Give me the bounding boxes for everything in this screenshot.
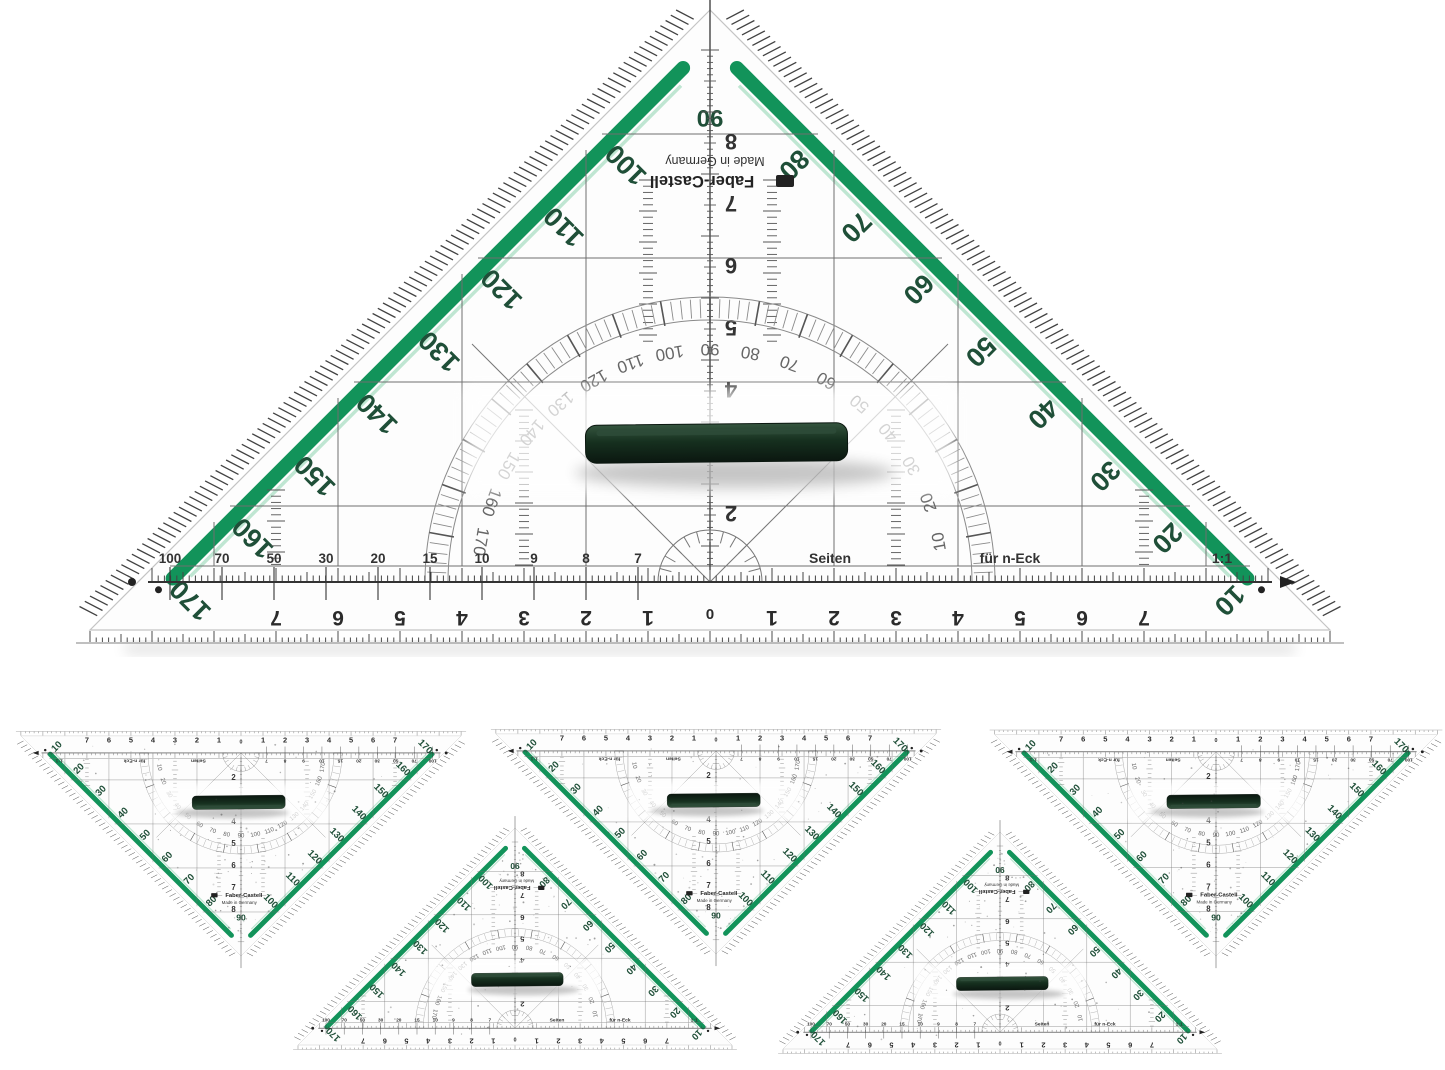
scale-label: Seiten (809, 550, 851, 566)
brand-logo-icon (1023, 890, 1029, 894)
scale-label: Seiten (666, 756, 681, 762)
scale-label: 100 (322, 1018, 330, 1024)
band-end-dot (519, 747, 521, 749)
scale-label: 3 (780, 734, 784, 743)
scale-label: für n-Eck (1094, 1022, 1115, 1028)
scale-label: 70 (1387, 757, 1393, 763)
scale-label: 5 (1004, 939, 1009, 948)
scale-label: 6 (1076, 606, 1088, 629)
scale-label: 5 (404, 1036, 408, 1045)
scale-label: 3 (173, 736, 177, 745)
scale-label: 8 (758, 756, 761, 762)
scale-label: 10 (1294, 757, 1300, 763)
scale-label: 80 (739, 342, 761, 364)
scale-label: 15 (899, 1022, 905, 1028)
scale-label: 70 (411, 758, 417, 764)
scale-label: 100 (903, 756, 911, 762)
scale-label: 7 (846, 1040, 850, 1049)
scale-label: 6 (1081, 734, 1085, 743)
scale-label: 5 (349, 736, 353, 745)
scale-label: Seiten (191, 758, 206, 764)
scale-label: 9 (937, 1022, 940, 1028)
scale-label: 6 (846, 734, 850, 743)
scale-label: 2 (580, 606, 592, 629)
scale-label: Faber-Castell (650, 172, 755, 190)
scale-label: 90 (511, 943, 518, 949)
scale-label: Faber-Castell (979, 888, 1016, 894)
scale-label: 5 (1103, 734, 1107, 743)
grip-handle (471, 972, 563, 986)
set-squares-scene: 1008011070120601305014040150301602017010… (0, 0, 1445, 1070)
scale-label: 1:1 (530, 756, 537, 762)
scale-label: 7 (634, 551, 642, 566)
brand-logo-icon (538, 886, 544, 890)
scale-label: 7 (85, 736, 89, 745)
bottom-mm-scale (293, 1045, 737, 1049)
scale-label: 1 (217, 736, 221, 745)
product-photo: 1008011070120601305014040150301602017010… (0, 0, 1445, 1070)
scale-label: 7 (706, 881, 710, 890)
band-end-dot (321, 1030, 323, 1032)
scale-label: 8 (283, 758, 286, 764)
scale-label: 5 (394, 606, 406, 629)
scale-label: 7 (665, 1036, 669, 1045)
scale-label: 2 (470, 1036, 474, 1045)
scale-label: 50 (266, 551, 281, 566)
scale-label: Made in Germany (665, 154, 765, 168)
scale-label: 10 (918, 1022, 924, 1028)
grip-handle (956, 976, 1048, 990)
scale-label: 7 (270, 606, 282, 629)
scale-label: 7 (973, 1022, 976, 1028)
scale-label: 7 (488, 1018, 491, 1024)
scale-label: 100 (1404, 757, 1412, 763)
band-end-dot (1258, 586, 1265, 593)
ruler-end-arrow (508, 749, 514, 753)
brand-logo-icon (211, 893, 217, 897)
ruler-end-dot (1421, 750, 1424, 753)
scale-label: 1 (1192, 734, 1196, 743)
scale-label: Made in Germany (222, 900, 258, 905)
band-end-dot (707, 1030, 709, 1032)
scale-label: 30 (318, 551, 333, 566)
scale-label: 1 (736, 734, 740, 743)
band-end-dot (911, 747, 913, 749)
brand-logo-icon (776, 175, 794, 187)
scale-label: 7 (520, 891, 524, 900)
bottom-mm-scale (990, 730, 1443, 734)
scale-label: 0 (998, 1040, 1001, 1046)
scale-label: 30 (374, 758, 380, 764)
scale-label: 8 (1004, 873, 1009, 882)
triangle-shadow (125, 644, 1295, 653)
band-end-dot (806, 1034, 808, 1036)
band-end-dot (1018, 748, 1020, 750)
scale-label: 7 (1240, 757, 1243, 763)
scale-label: 30 (863, 1022, 869, 1028)
scale-label: 5 (1106, 1040, 1110, 1049)
scale-label: 6 (868, 1040, 872, 1049)
scale-label: 5 (824, 734, 828, 743)
scale-label: 90 (701, 340, 720, 359)
band-end-dot (1412, 748, 1414, 750)
ruler-end-dot (796, 1031, 799, 1034)
scale-label: 20 (1332, 757, 1338, 763)
set-square-large: 1008011070120601305014040150301602017010… (76, 0, 1344, 653)
scale-label: Made in Germany (1197, 900, 1233, 905)
scale-label: 4 (456, 606, 468, 629)
scale-label: 20 (396, 1018, 402, 1024)
scale-label: 3 (890, 606, 902, 629)
scale-label: 5 (1206, 838, 1211, 847)
scale-label: 10 (794, 756, 800, 762)
scale-label: 7 (560, 734, 564, 743)
scale-label: 3 (305, 736, 309, 745)
scale-label: 15 (1313, 757, 1319, 763)
scale-label: 2 (231, 773, 236, 782)
scale-label: für n-Eck (1098, 757, 1120, 763)
scale-label: 10 (474, 551, 489, 566)
scale-label: 6 (1347, 734, 1351, 743)
scale-label: 8 (1259, 757, 1262, 763)
scale-label: 7 (740, 756, 743, 762)
scale-label: 10 (928, 531, 950, 553)
scale-label: 8 (231, 905, 236, 914)
scale-label: Seiten (1166, 757, 1181, 763)
scale-label: 7 (361, 1036, 365, 1045)
grip-handle (667, 793, 760, 807)
scale-label: 2 (706, 771, 711, 780)
band-end-dot (44, 749, 46, 751)
scale-label: 2 (670, 734, 674, 743)
scale-label: 9 (452, 1018, 455, 1024)
scale-label: 5 (889, 1040, 893, 1049)
scale-label: 70 (342, 1018, 348, 1024)
brand-logo-icon (686, 891, 692, 895)
scale-label: 1 (692, 734, 696, 743)
ruler-end-arrow (1007, 750, 1013, 754)
scale-label: 3 (933, 1040, 937, 1049)
scale-label: für n-Eck (609, 1018, 630, 1024)
ruler-end-dot (128, 578, 136, 586)
scale-label: Faber-Castell (700, 891, 737, 897)
scale-label: für n-Eck (599, 756, 621, 762)
bottom-mm-scale (491, 729, 941, 733)
scale-label: 1 (491, 1036, 495, 1045)
scale-label: 0 (715, 737, 718, 743)
scale-label: 6 (520, 913, 524, 922)
bottom-mm-scale (16, 731, 466, 735)
scale-label: 9 (302, 758, 305, 764)
scale-label: 5 (706, 837, 711, 846)
scale-label: 8 (470, 1018, 473, 1024)
scale-label: 5 (519, 935, 524, 944)
scale-label: 6 (582, 734, 586, 743)
band-end-dot (436, 749, 438, 751)
scale-label: 1:1 (1029, 757, 1036, 763)
scale-label: Faber-Castell (494, 884, 531, 890)
scale-label: 6 (1128, 1040, 1132, 1049)
scale-label: 2 (725, 501, 737, 526)
scale-label: 30 (1350, 757, 1356, 763)
scale-label: 50 (868, 756, 874, 762)
scale-label: 8 (582, 551, 590, 566)
scale-label: 1 (976, 1040, 980, 1049)
scale-label: 9 (1277, 757, 1280, 763)
scale-label: 100 (428, 758, 436, 764)
scale-label: 6 (1005, 917, 1009, 926)
scale-label: 70 (827, 1022, 833, 1028)
scale-label: 5 (231, 839, 236, 848)
ruler-end-dot (920, 750, 923, 753)
scale-label: 20 (881, 1022, 887, 1028)
scale-label: 3 (1280, 734, 1284, 743)
scale-label: 6 (1206, 860, 1211, 869)
scale-label: 7 (265, 758, 268, 764)
scale-label: 50 (360, 1018, 366, 1024)
scale-label: 3 (518, 606, 530, 629)
scale-label: 30 (378, 1018, 384, 1024)
scale-label: 6 (231, 861, 236, 870)
scale-label: 3 (1148, 734, 1152, 743)
scale-label: 1 (766, 606, 778, 629)
scale-label: 100 (807, 1022, 815, 1028)
scale-label: 15 (812, 756, 818, 762)
scale-label: 7 (1005, 895, 1009, 904)
scale-label: 1:1 (55, 758, 62, 764)
scale-label: 2 (1258, 734, 1262, 743)
scale-label: 70 (886, 756, 892, 762)
scale-label: 3 (578, 1036, 582, 1045)
scale-label: 30 (849, 756, 855, 762)
scale-label: 2 (195, 736, 199, 745)
scale-label: 0 (706, 605, 714, 622)
scale-label: 7 (231, 883, 235, 892)
scale-label: 7 (1369, 734, 1373, 743)
scale-label: 5 (1325, 734, 1329, 743)
scale-label: 5 (725, 315, 737, 340)
scale-label: 0 (513, 1036, 516, 1042)
set-square-small-1: 1008011070120601305014040150301602017010… (16, 731, 466, 968)
scale-label: 90 (238, 833, 245, 839)
scale-label: 15 (337, 758, 343, 764)
scale-label: 9 (530, 551, 538, 566)
band-end-dot (1192, 1034, 1194, 1036)
scale-label: 20 (356, 758, 362, 764)
scale-label: 2 (556, 1036, 560, 1045)
scale-label: 6 (725, 253, 737, 278)
scale-label: 6 (371, 736, 375, 745)
scale-label: Made in Germany (499, 878, 534, 883)
scale-label: 7 (1138, 606, 1150, 629)
scale-label: 5 (621, 1036, 625, 1045)
scale-label: 1:1 (1176, 1022, 1183, 1028)
scale-label: 1 (1020, 1040, 1024, 1049)
scale-label: 10 (433, 1018, 439, 1024)
scale-label: Made in Germany (984, 882, 1019, 887)
ruler-end-arrow (33, 751, 39, 755)
scale-label: 7 (868, 734, 872, 743)
scale-label: 2 (758, 734, 762, 743)
scale-label: 9 (777, 756, 780, 762)
scale-label: 90 (1213, 833, 1220, 839)
ruler-end-dot (445, 752, 448, 755)
scale-label: 20 (831, 756, 837, 762)
scale-label: 2 (1170, 734, 1174, 743)
scale-label: 90 (713, 831, 720, 837)
bottom-mm-scale (778, 1049, 1222, 1053)
scale-label: 5 (129, 736, 133, 745)
scale-label: 1 (642, 606, 654, 629)
scale-label: 50 (1369, 757, 1375, 763)
scale-label: 5 (1014, 606, 1026, 629)
scale-label: 15 (422, 551, 438, 566)
ruler-end-dot (311, 1027, 314, 1030)
scale-label: 8 (519, 869, 524, 878)
scale-label: 8 (725, 129, 737, 154)
scale-label: 1 (535, 1036, 539, 1045)
scale-label: 90 (996, 947, 1003, 953)
scale-label: 3 (1063, 1040, 1067, 1049)
scale-label: 2 (828, 606, 840, 629)
scale-label: 2 (955, 1040, 959, 1049)
scale-label: 50 (393, 758, 399, 764)
scale-label: 2 (1041, 1040, 1045, 1049)
band-end-dot (155, 586, 162, 593)
scale-label: für n-Eck (124, 758, 146, 764)
scale-label: 0 (240, 739, 243, 745)
scale-label: 1:1 (691, 1018, 698, 1024)
scale-label: 6 (332, 606, 344, 629)
ruler-end-arrow (715, 1026, 721, 1030)
scale-label: 6 (643, 1036, 647, 1045)
scale-label: 3 (448, 1036, 452, 1045)
scale-label: Seiten (550, 1018, 565, 1024)
scale-label: 6 (107, 736, 111, 745)
scale-label: 15 (414, 1018, 420, 1024)
scale-label: Faber-Castell (225, 893, 262, 899)
scale-label: 4 (952, 606, 964, 629)
scale-label: 7 (1059, 734, 1063, 743)
bottom-mm-scale (76, 631, 1344, 643)
scale-label: 1 (261, 736, 265, 745)
scale-label: 8 (1206, 905, 1211, 914)
scale-label: für n-Eck (980, 550, 1041, 566)
grip-handle (1167, 794, 1261, 809)
scale-label: 100 (159, 551, 182, 566)
scale-label: 3 (648, 734, 652, 743)
scale-label: 7 (725, 191, 737, 216)
ruler-end-arrow (1200, 1030, 1206, 1034)
scale-label: 0 (1215, 738, 1218, 744)
scale-label: 70 (214, 551, 229, 566)
scale-label: 50 (845, 1022, 851, 1028)
brand-logo-icon (1186, 893, 1192, 897)
scale-label: 6 (383, 1036, 387, 1045)
scale-label: 2 (283, 736, 287, 745)
scale-label: 8 (706, 903, 711, 912)
scale-label: 2 (1005, 1004, 1009, 1013)
scale-label: 8 (955, 1022, 958, 1028)
scale-label: 10 (319, 758, 325, 764)
scale-label: 5 (604, 734, 608, 743)
scale-label: 2 (1206, 772, 1211, 781)
scale-label: 1 (1236, 734, 1240, 743)
scale-label: 20 (370, 551, 385, 566)
grip-handle (192, 795, 285, 809)
scale-label: 7 (1150, 1040, 1154, 1049)
scale-label: 2 (520, 1000, 524, 1009)
scale-label: 7 (393, 736, 397, 745)
grip-handle (585, 423, 847, 464)
scale-label: 1:1 (1212, 550, 1232, 566)
scale-label: Made in Germany (697, 898, 733, 903)
scale-label: 6 (706, 859, 711, 868)
